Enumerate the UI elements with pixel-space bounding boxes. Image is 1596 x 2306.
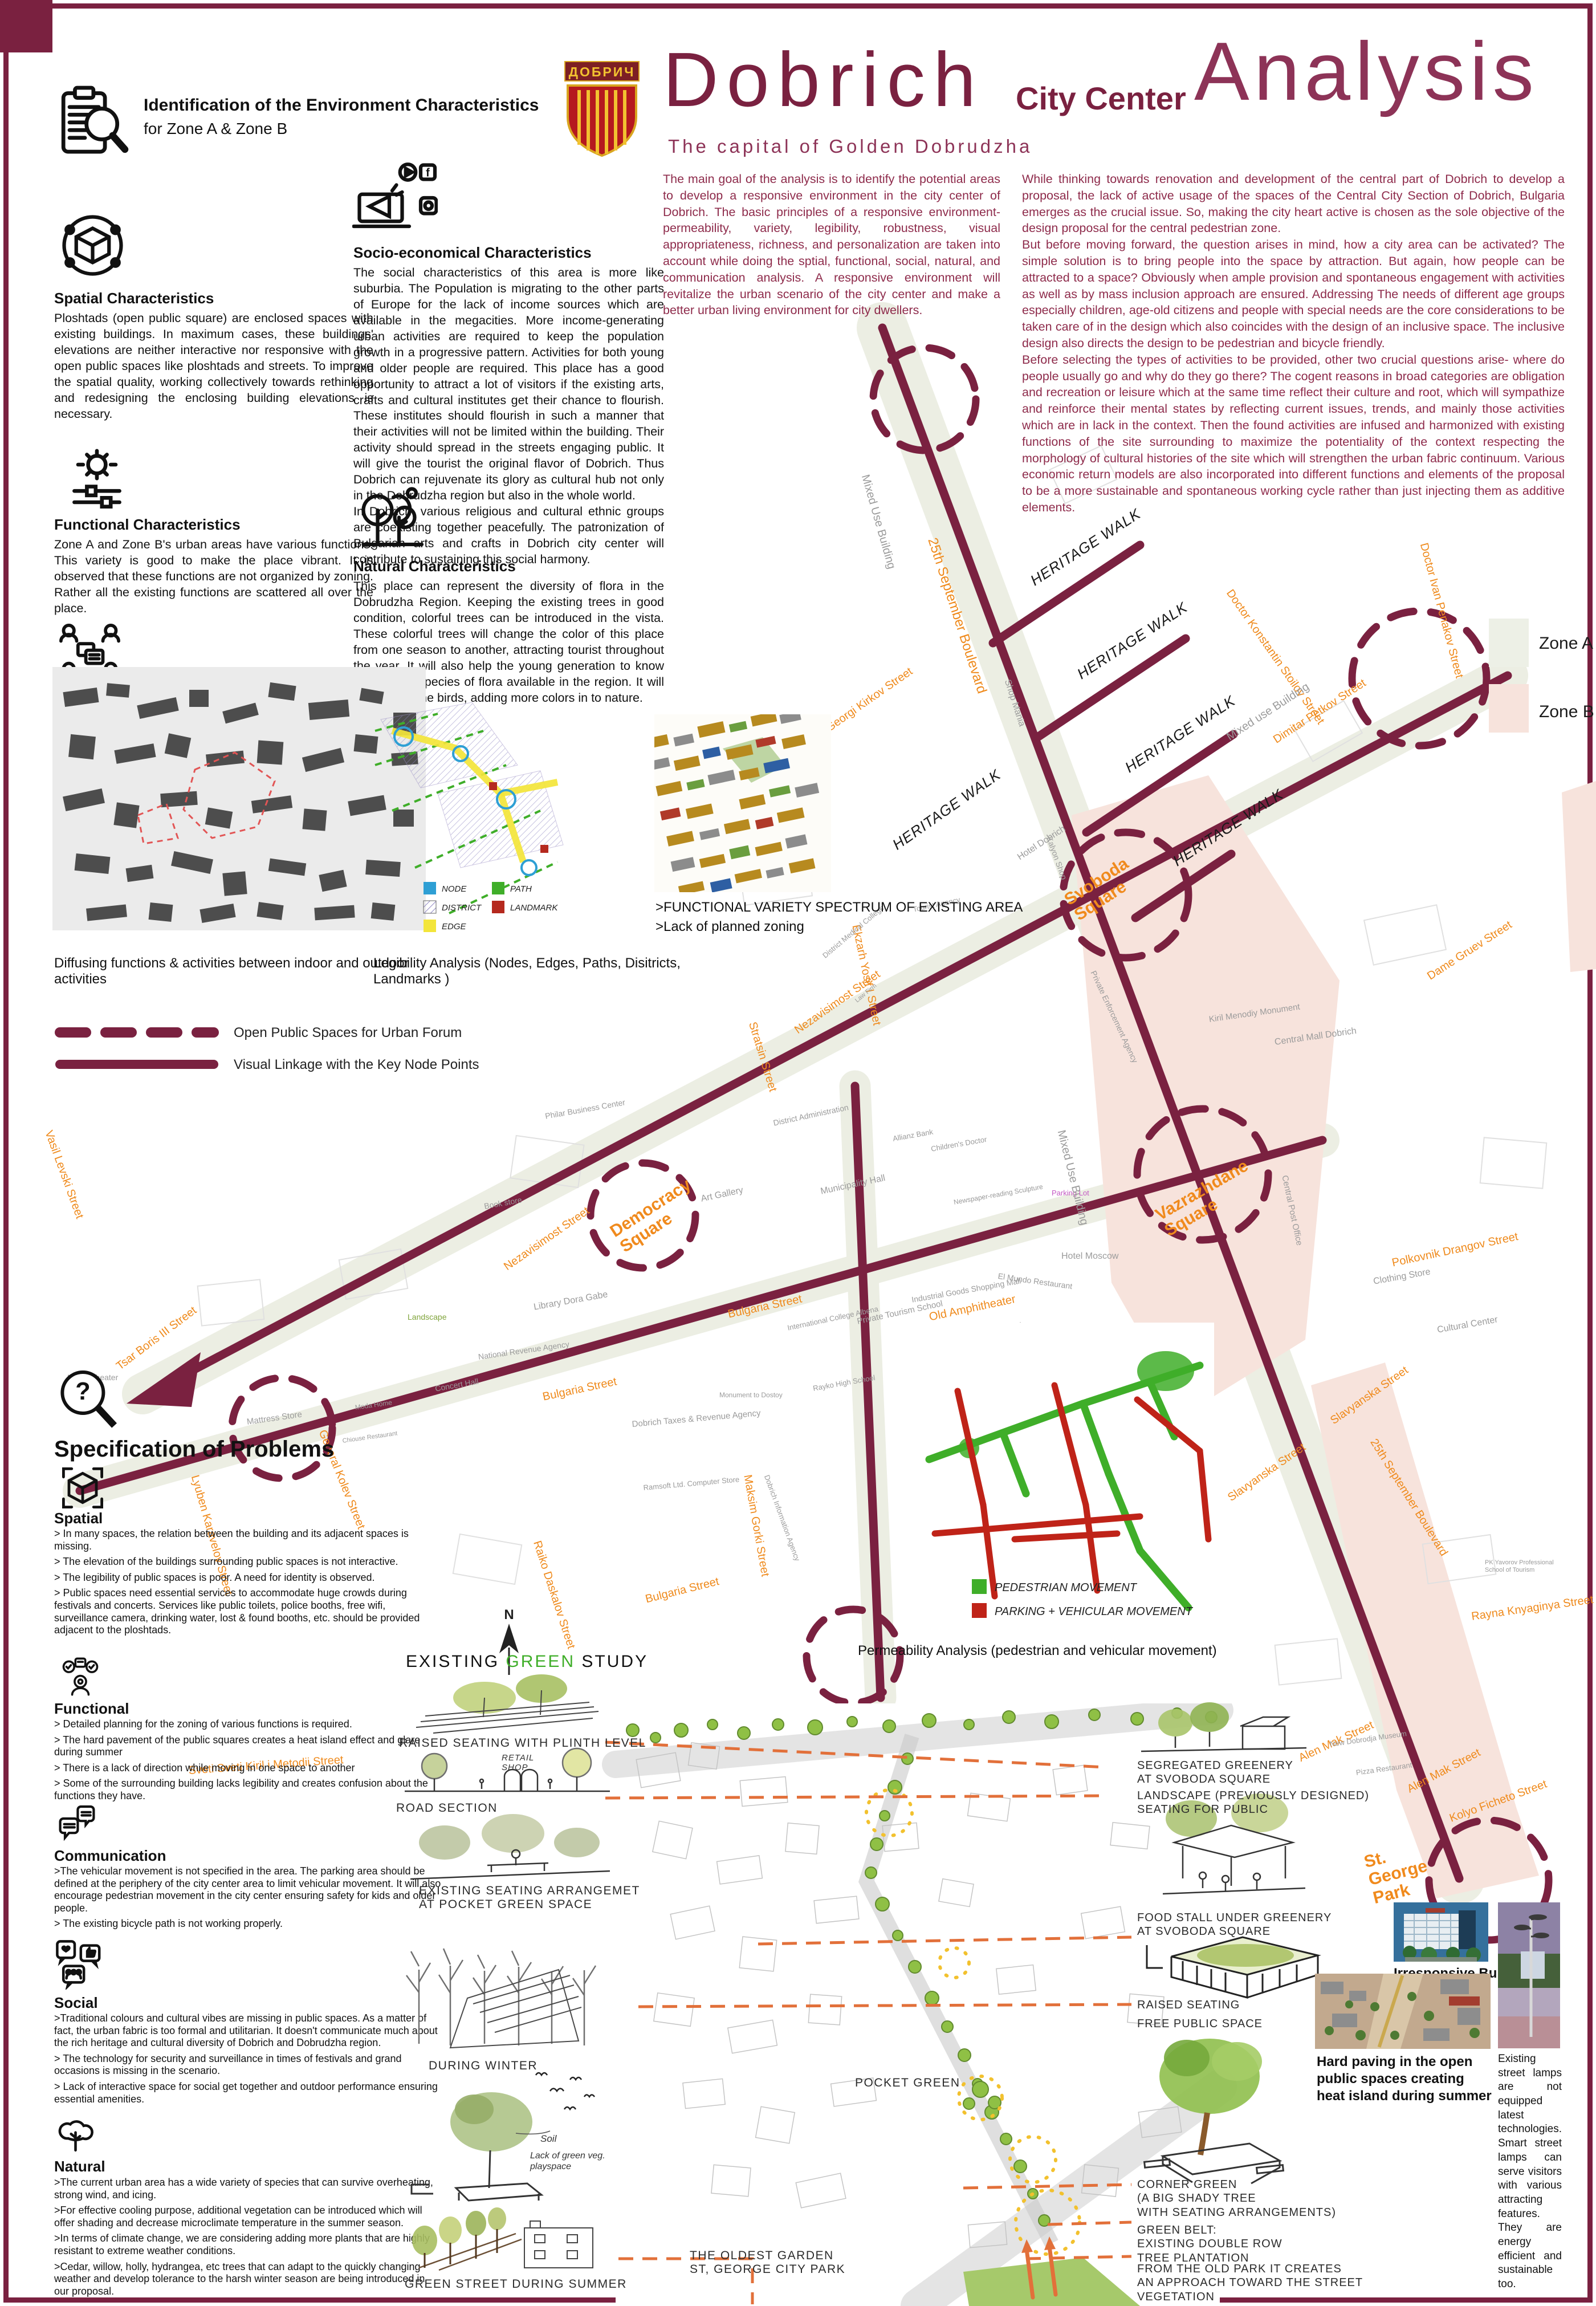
- permeability-caption: Permeability Analysis (pedestrian and ve…: [858, 1643, 1223, 1659]
- photo-street-lamps: [1498, 1902, 1560, 2048]
- list-item: > The elevation of the buildings surroun…: [54, 1556, 442, 1568]
- square-label: Svoboda Square: [1061, 855, 1142, 925]
- street-label: Vasil Levski Street: [42, 1129, 85, 1221]
- caption-pocket-seating: EXISTING SEATING ARRANGEMET AT POCKET GR…: [419, 1884, 640, 1912]
- place-label: Clothing Store: [1373, 1267, 1431, 1287]
- identification-title: Identification of the Environment Charac…: [144, 96, 577, 115]
- heritage-walk-label: HERITAGE WALK: [1170, 786, 1286, 870]
- permeability-legend-red: PARKING + VEHICULAR MOVEMENT: [995, 1605, 1194, 1618]
- permeability-map: PEDESTRIAN MOVEMENT PARKING + VEHICULAR …: [912, 1323, 1214, 1665]
- place-label: Municipality Hall: [820, 1173, 886, 1197]
- intro-paragraph-left: The main goal of the analysis is to iden…: [663, 171, 1000, 319]
- place-label: Allianz Bank: [892, 1128, 934, 1143]
- logo-text: ДОБРИЧ: [569, 64, 636, 79]
- caption-green-street-summer: GREEN STREET DURING SUMMER: [405, 2277, 627, 2291]
- place-label: Mixed Use Building: [858, 473, 898, 571]
- street-label: Bulgaria Street: [644, 1575, 720, 1606]
- functional-variety-map: [654, 714, 831, 892]
- place-label: Central Post Office: [1280, 1174, 1304, 1246]
- place-label: Philar Business Center: [544, 1097, 626, 1120]
- heritage-walk-label: HERITAGE WALK: [1074, 599, 1191, 683]
- heritage-walk-label: HERITAGE WALK: [889, 766, 1004, 853]
- zone-a-label: Zone A: [1539, 634, 1593, 653]
- svg-text:f: f: [426, 167, 430, 180]
- street-label: Rayna Knyaginya Street: [1471, 1593, 1594, 1624]
- place-label: Rayko High School: [812, 1373, 876, 1393]
- street-label: Georgi Kirkov Street: [824, 665, 915, 735]
- heritage-walk-label: HERITAGE WALK: [1122, 692, 1239, 776]
- laptop-megaphone-icon: f: [352, 161, 438, 235]
- place-label: Concert Hall: [434, 1377, 479, 1393]
- legend-edge: EDGE: [442, 922, 467, 932]
- social-bubbles-icon: [54, 1938, 105, 1990]
- legend-dashed-label: Open Public Spaces for Urban Forum: [234, 1025, 462, 1041]
- problems-natural-title: Natural: [54, 2158, 105, 2175]
- socio-economical-title: Socio-economical Characteristics: [353, 244, 592, 262]
- street-label: Polkovnik Drangov Street: [1391, 1230, 1520, 1270]
- callout-food-stall: FOOD STALL UNDER GREENERY AT SVOBODA SQU…: [1137, 1911, 1332, 1939]
- place-label: Landscape: [408, 1312, 447, 1321]
- pocket-green-label: POCKET GREEN: [855, 2076, 960, 2090]
- legend-solid-label: Visual Linkage with the Key Node Points: [234, 1057, 479, 1073]
- place-label: Mixed use Building: [1224, 681, 1312, 744]
- street-label: Nezavisimost Street: [502, 1205, 592, 1274]
- street-label: Stratsin Street: [746, 1020, 779, 1093]
- legend-landmark: LANDMARK: [510, 903, 558, 913]
- place-label: Dobrich Taxes & Revenue Agency: [632, 1408, 761, 1429]
- street-label: Doctor Ivan Penakov Street: [1417, 542, 1466, 680]
- title-dobrich: Dobrich: [663, 35, 984, 124]
- problems-social-title: Social: [54, 1994, 98, 2012]
- title-analysis: Analysis: [1194, 24, 1538, 119]
- street-label: Bulgaria Street: [727, 1292, 803, 1321]
- street-label: Dimitar Petkov Street: [1271, 677, 1369, 746]
- node-swatch: [424, 882, 436, 894]
- permeability-legend-green: PEDESTRIAN MOVEMENT: [995, 1581, 1138, 1594]
- legibility-analysis-map: NODE DISTRICT EDGE PATH LANDMARK: [369, 697, 577, 947]
- tree-icon: [57, 2116, 94, 2153]
- legend-node: NODE: [442, 884, 467, 894]
- title-city-center: City Center: [1016, 80, 1186, 117]
- place-label: PK Yavorov Professional School of Touris…: [1485, 1559, 1565, 1573]
- place-label: Cultural Center: [1436, 1315, 1499, 1335]
- legend-dashed-line: [54, 1024, 219, 1041]
- callout-landscape-seating: LANDSCAPE (PREVIOUSLY DESIGNED) SEATING …: [1137, 1789, 1369, 1817]
- svg-text:?: ?: [75, 1378, 90, 1405]
- place-label: Private Enforcement Agency: [1089, 969, 1139, 1064]
- functional-characteristics-body: Zone A and Zone B's urban areas have var…: [54, 537, 373, 617]
- street-label: Raiko Daskalov Street: [530, 1539, 577, 1650]
- callout-free-public-space: FREE PUBLIC SPACE: [1137, 2017, 1263, 2031]
- place-label: Children's Doctor: [930, 1135, 987, 1153]
- list-item: > Public spaces need essential services …: [54, 1587, 442, 1636]
- place-label: Art Gallery: [700, 1185, 744, 1204]
- callout-old-park-approach: FROM THE OLD PARK IT CREATES AN APPROACH…: [1137, 2262, 1363, 2304]
- north-label: N: [504, 1608, 514, 1622]
- problems-spatial-title: Spatial: [54, 1510, 103, 1527]
- street-label: Tsar Boris III Street: [114, 1304, 199, 1373]
- figure-ground-caption: Diffusing functions & activities between…: [54, 955, 419, 987]
- problems-functional-title: Functional: [54, 1700, 129, 1718]
- legend-solid-line: [54, 1056, 219, 1073]
- place-label: Monument to Dostoy: [719, 1391, 783, 1399]
- place-label: Book store: [483, 1195, 523, 1210]
- square-label: Democracy Square: [607, 1176, 705, 1256]
- street-label: 25th September Boulevard: [1367, 1437, 1450, 1559]
- place-label: Library Dora Gabe: [533, 1290, 609, 1313]
- spatial-characteristics-body: Ploshtads (open public square) are enclo…: [54, 311, 373, 422]
- natural-characteristics-title: Natural Characteristics: [353, 558, 516, 575]
- heritage-walk-label: HERITAGE WALK: [1027, 505, 1144, 589]
- callout-corner-green: CORNER GREEN (A BIG SHADY TREE WITH SEAT…: [1137, 2178, 1336, 2219]
- annotation-retail-shop: RETAIL SHOP: [502, 1753, 534, 1772]
- caption-during-winter: DURING WINTER: [429, 2059, 538, 2073]
- square-label: Vazrazhdane Square: [1153, 1157, 1261, 1241]
- clipboard-magnifier-icon: [54, 86, 131, 162]
- question-magnifier-icon: ?: [54, 1365, 123, 1434]
- chat-bubbles-icon: [57, 1803, 97, 1843]
- people-gear-check-icon: [60, 1656, 101, 1697]
- cube-frame-icon: [60, 1465, 105, 1511]
- spatial-characteristics-title: Spatial Characteristics: [54, 290, 214, 307]
- annotation-lack-green: Lack of green veg. playspace: [530, 2150, 605, 2172]
- street-label: Dame Gruev Street: [1425, 918, 1514, 983]
- poster: 25th September Boulevard 25th September …: [0, 0, 1596, 2306]
- street-label: Bulgaria Street: [541, 1375, 618, 1404]
- list-item: > The legibility of public spaces is poo…: [54, 1572, 442, 1584]
- cube-network-icon: [57, 210, 128, 281]
- dobrich-coat-of-arms: ДОБРИЧ: [561, 60, 642, 158]
- caption-road-section: ROAD SECTION: [396, 1801, 498, 1815]
- functional-variety-caption-2: >Lack of planned zoning: [655, 919, 804, 935]
- title-subtitle: The capital of Golden Dobrudzha: [668, 136, 1032, 157]
- identification-subtitle: for Zone A & Zone B: [144, 120, 287, 138]
- place-label: Mixed Use Building: [1054, 1129, 1091, 1227]
- place-label: Newspaper-reading Sculpture: [953, 1182, 1044, 1206]
- legend-district: DISTRICT: [442, 903, 482, 913]
- trees-icon: [356, 482, 427, 553]
- list-item: > In many spaces, the relation between t…: [54, 1528, 442, 1552]
- functional-variety-caption-1: >FUNCTIONAL VARIETY SPECTRUM OF EXISTING…: [655, 900, 1023, 916]
- problems-title: Specification of Problems: [54, 1437, 334, 1462]
- place-label: District Administration: [772, 1103, 849, 1128]
- place-label: Ramsoft Ltd. Computer Store: [643, 1475, 740, 1492]
- caption-hard-paving: Hard paving in the open public spaces cr…: [1317, 2053, 1493, 2105]
- place-label: National Revenue Agency: [478, 1340, 570, 1361]
- place-label: Dobrich Information Agency: [763, 1474, 802, 1562]
- place-label: Moda Home: [355, 1398, 393, 1412]
- place-label: Central Mall Dobrich: [1274, 1026, 1357, 1048]
- caption-raised-seating-plinth: RAISED SEATING WITH PLINTH LEVEL: [399, 1736, 646, 1750]
- caption-street-lamps: Existing street lamps are not equipped l…: [1498, 2052, 1562, 2292]
- intro-paragraph-right: While thinking towards renovation and de…: [1022, 171, 1565, 516]
- legibility-caption: Legibility Analysis (Nodes, Edges, Paths…: [373, 955, 693, 987]
- photo-irresponsive-building: [1394, 1902, 1488, 1962]
- place-label: Shop Mania: [1002, 678, 1027, 728]
- legend-path: PATH: [510, 884, 532, 894]
- gear-sliders-icon: [66, 446, 128, 509]
- photo-hard-paving-aerial: [1315, 1974, 1491, 2049]
- place-label: Mattress Store: [246, 1409, 303, 1426]
- zone-b-label: Zone B: [1539, 702, 1594, 722]
- place-label: Hotel Moscow: [1061, 1251, 1118, 1262]
- annotation-soil: Soil: [540, 2133, 556, 2145]
- callout-raised-seating: RAISED SEATING: [1137, 1998, 1240, 2012]
- street-label: Slavyanska Street: [1225, 1441, 1308, 1504]
- street-label: Slavyanska Street: [1328, 1364, 1411, 1427]
- callout-green-belt: GREEN BELT: EXISTING DOUBLE ROW TREE PLA…: [1137, 2223, 1282, 2265]
- functional-characteristics-title: Functional Characteristics: [54, 516, 241, 534]
- place-label: Kiril Menodiy Monument: [1208, 1002, 1301, 1024]
- problems-spatial-items: > In many spaces, the relation between t…: [54, 1528, 442, 1640]
- oldest-garden-label: THE OLDEST GARDEN ST, GEORGE CITY PARK: [690, 2249, 845, 2276]
- callout-segregated-greenery: SEGREGATED GREENERY AT SVOBODA SQUARE: [1137, 1759, 1293, 1787]
- problems-communication-title: Communication: [54, 1847, 166, 1865]
- street-label: 25th September Boulevard: [924, 536, 990, 696]
- place-label: Chiouse Restaurant: [342, 1430, 398, 1444]
